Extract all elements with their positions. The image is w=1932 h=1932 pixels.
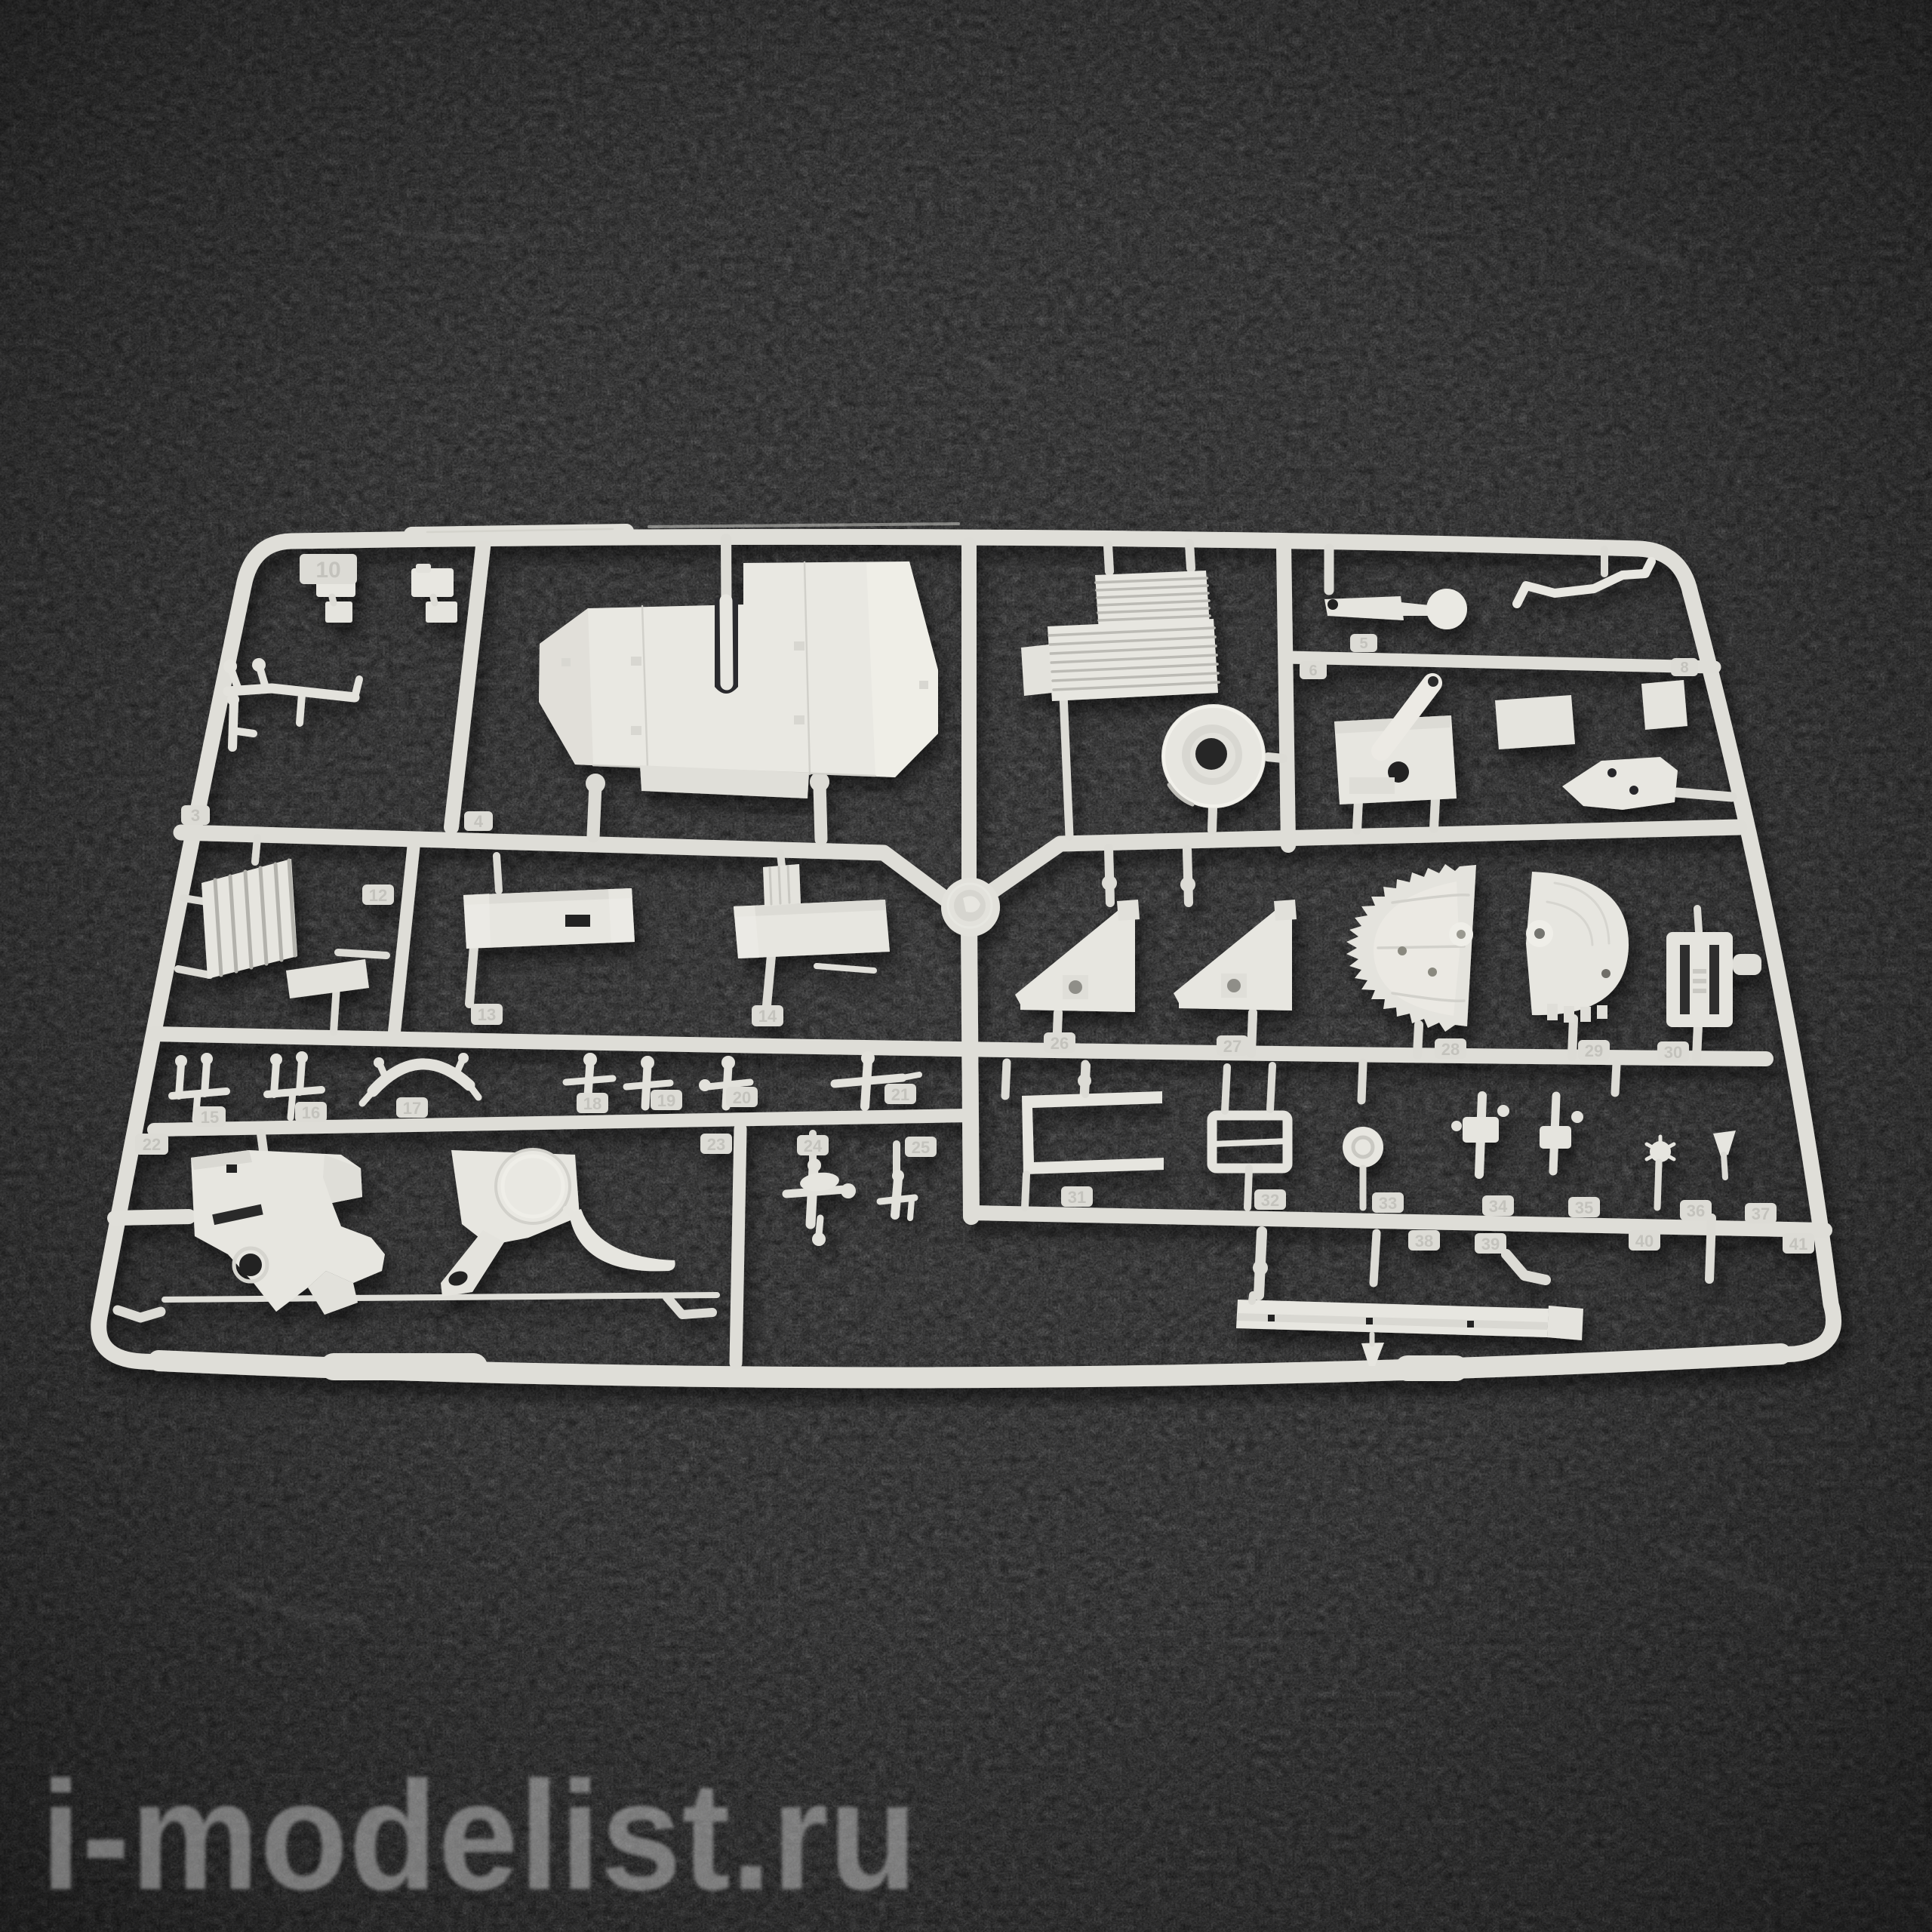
- svg-text:26: 26: [1051, 1034, 1069, 1053]
- svg-text:20: 20: [733, 1088, 751, 1107]
- svg-text:3: 3: [191, 806, 200, 825]
- svg-text:5: 5: [1359, 635, 1367, 652]
- svg-text:21: 21: [891, 1085, 909, 1104]
- svg-text:24: 24: [804, 1137, 823, 1155]
- svg-text:36: 36: [1687, 1201, 1705, 1220]
- svg-text:40: 40: [1635, 1232, 1654, 1251]
- svg-text:12: 12: [369, 886, 387, 905]
- svg-text:34: 34: [1489, 1197, 1508, 1216]
- svg-text:10: 10: [315, 558, 340, 583]
- svg-text:41: 41: [1789, 1235, 1807, 1254]
- svg-text:15: 15: [201, 1108, 219, 1127]
- svg-text:32: 32: [1261, 1191, 1279, 1210]
- svg-text:28: 28: [1441, 1040, 1460, 1059]
- svg-text:14: 14: [758, 1007, 777, 1026]
- svg-text:6: 6: [1309, 663, 1317, 679]
- svg-text:13: 13: [478, 1005, 496, 1024]
- svg-text:30: 30: [1664, 1043, 1682, 1062]
- svg-text:i-modelist.ru: i-modelist.ru: [41, 1749, 918, 1922]
- svg-text:19: 19: [657, 1091, 675, 1110]
- svg-text:27: 27: [1223, 1037, 1241, 1056]
- svg-text:31: 31: [1068, 1188, 1086, 1207]
- svg-text:25: 25: [912, 1138, 930, 1157]
- svg-text:22: 22: [143, 1135, 161, 1154]
- svg-text:23: 23: [707, 1135, 725, 1154]
- svg-text:8: 8: [1680, 660, 1688, 676]
- svg-text:37: 37: [1752, 1204, 1770, 1223]
- svg-text:33: 33: [1379, 1194, 1397, 1213]
- svg-text:16: 16: [302, 1103, 320, 1122]
- svg-text:35: 35: [1575, 1198, 1593, 1217]
- svg-text:4: 4: [474, 812, 484, 831]
- svg-text:18: 18: [583, 1094, 601, 1113]
- svg-text:29: 29: [1585, 1041, 1603, 1060]
- svg-text:38: 38: [1415, 1232, 1433, 1251]
- svg-text:17: 17: [403, 1099, 421, 1118]
- svg-text:39: 39: [1481, 1235, 1500, 1254]
